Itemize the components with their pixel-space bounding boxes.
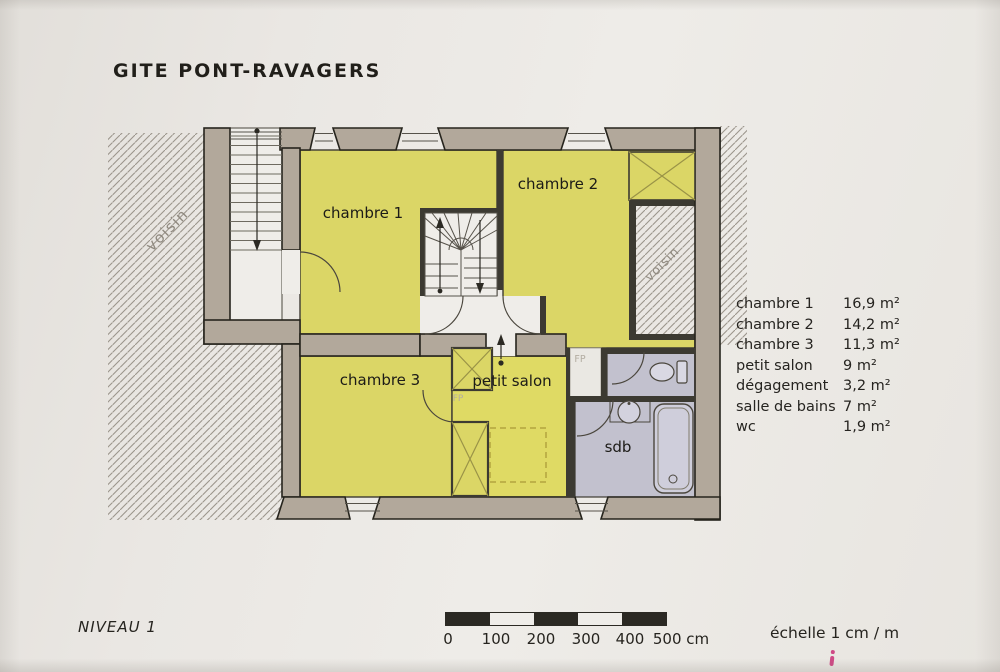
legend-row: wc1,9 m² [736,417,900,438]
page-title: GITE PONT-RAVAGERS [113,60,381,82]
photographed-floor-plan-sheet: voisin voisin [0,0,1000,672]
central-staircase [425,213,497,296]
bathtub [654,404,693,493]
legend-label: chambre 2 [736,315,843,336]
scale-tick: 0 [443,630,453,648]
scale-caption: échelle 1 cm / m [770,624,899,642]
scale-tick: 300 [572,630,601,648]
chambre1-door-gap [282,250,300,294]
closet-lower [452,422,488,496]
legend-area: 7 m² [843,397,900,418]
legend-row: petit salon9 m² [736,356,900,377]
scale-segment [446,613,490,625]
scale-segment [490,613,534,625]
scale-tick: 500 cm [653,630,709,648]
label-chambre-1: chambre 1 [323,204,403,222]
label-fp-2: FP [453,394,464,404]
legend-row: salle de bains7 m² [736,397,900,418]
legend-area: 3,2 m² [843,376,900,397]
legend-row: dégagement3,2 m² [736,376,900,397]
scale-tick: 400 [616,630,645,648]
scale-segment [534,613,578,625]
scale-segment [578,613,622,625]
label-petit-salon: petit salon [472,372,551,390]
closet-chambre2 [629,152,695,200]
scale-tick: 100 [482,630,511,648]
legend-label: chambre 3 [736,335,843,356]
legend-label: salle de bains [736,397,843,418]
room-stairwell-left [230,128,282,336]
legend-area: 1,9 m² [843,417,900,438]
label-fp-1: FP [574,354,585,365]
legend-area: 11,3 m² [843,335,900,356]
label-sdb: sdb [605,438,632,456]
legend-row: chambre 116,9 m² [736,294,900,315]
legend-area: 9 m² [843,356,900,377]
scale-bar [445,612,667,626]
legend-area: 14,2 m² [843,315,900,336]
scale-segment [622,613,666,625]
label-chambre-3: chambre 3 [340,371,420,389]
legend-row: chambre 311,3 m² [736,335,900,356]
area-legend: chambre 116,9 m² chambre 214,2 m² chambr… [736,294,900,438]
legend-area: 16,9 m² [843,294,900,315]
legend-label: dégagement [736,376,843,397]
neighbor-pocket-right: voisin [629,200,695,340]
label-chambre-2: chambre 2 [518,175,598,193]
room-degagement [420,296,540,334]
legend-label: wc [736,417,843,438]
legend-label: petit salon [736,356,843,377]
legend-row: chambre 214,2 m² [736,315,900,336]
legend-label: chambre 1 [736,294,843,315]
toilet [650,361,687,383]
scale-tick: 200 [527,630,556,648]
